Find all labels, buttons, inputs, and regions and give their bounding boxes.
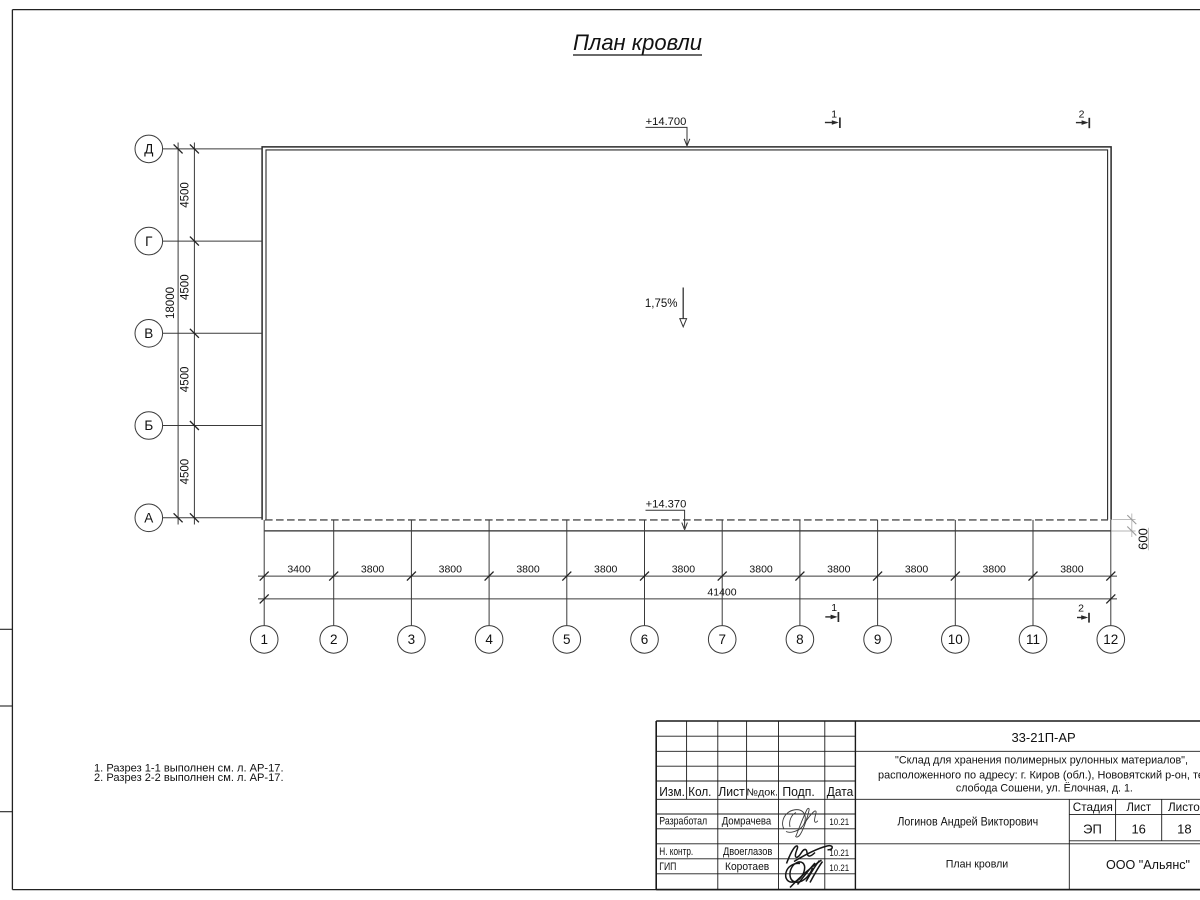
svg-text:8: 8 [796,632,804,647]
svg-text:4500: 4500 [179,459,191,485]
svg-text:3: 3 [408,632,416,647]
svg-text:3800: 3800 [594,564,618,576]
svg-text:2: 2 [330,632,338,647]
svg-text:33-21П-АР: 33-21П-АР [1011,730,1075,745]
svg-text:Коротаев: Коротаев [725,861,769,873]
svg-text:9: 9 [874,632,882,647]
svg-text:3400: 3400 [287,564,311,576]
svg-text:Лист: Лист [718,784,745,799]
svg-text:1: 1 [831,602,837,614]
svg-text:1,75%: 1,75% [645,298,678,310]
svg-text:+14.370: +14.370 [646,498,687,510]
svg-text:Н. контр.: Н. контр. [659,846,693,858]
svg-text:Стадия: Стадия [1073,800,1113,814]
svg-text:16: 16 [1131,822,1145,837]
svg-text:600: 600 [1136,528,1151,550]
svg-text:1: 1 [260,632,268,647]
svg-text:Г: Г [145,234,153,249]
svg-text:План кровли: План кровли [573,30,702,55]
svg-text:5: 5 [563,632,571,647]
svg-text:Дата: Дата [827,784,854,799]
svg-text:10.21: 10.21 [829,862,849,873]
svg-text:3800: 3800 [439,564,463,576]
svg-text:4500: 4500 [179,367,191,393]
svg-text:В: В [144,326,153,341]
svg-text:ГИП: ГИП [659,861,676,873]
svg-text:18000: 18000 [165,287,177,319]
svg-text:Разработал: Разработал [659,816,707,828]
svg-text:4500: 4500 [179,182,191,208]
svg-text:10.21: 10.21 [829,816,849,827]
svg-text:3800: 3800 [749,564,773,576]
svg-text:расположенного по адресу: г. К: расположенного по адресу: г. Киров (обл.… [878,770,1200,782]
svg-text:3800: 3800 [516,564,540,576]
svg-text:2: 2 [1079,109,1085,121]
svg-text:41400: 41400 [707,586,736,598]
svg-text:Лист: Лист [1127,800,1152,814]
svg-text:12: 12 [1103,632,1118,647]
svg-text:11: 11 [1026,632,1040,647]
svg-text:6: 6 [641,632,649,647]
svg-text:4: 4 [485,632,493,647]
svg-text:ЭП: ЭП [1083,822,1102,837]
svg-text:Б: Б [144,418,153,433]
svg-text:3800: 3800 [983,564,1007,576]
svg-text:3800: 3800 [827,564,851,576]
svg-text:Листов: Листов [1168,800,1200,814]
svg-text:ООО "Альянс": ООО "Альянс" [1106,857,1190,872]
svg-text:Д: Д [144,142,153,157]
svg-text:3800: 3800 [672,564,696,576]
svg-text:Домрачева: Домрачева [722,816,772,828]
svg-text:18: 18 [1177,822,1191,837]
svg-text:3800: 3800 [361,564,385,576]
svg-text:1: 1 [831,109,837,121]
svg-text:№док.: №док. [746,787,778,798]
svg-text:3800: 3800 [905,564,929,576]
svg-text:"Склад для хранения полимерных: "Склад для хранения полимерных рулонных … [895,755,1188,767]
svg-text:Подп.: Подп. [782,784,814,799]
svg-text:План кровли: План кровли [946,859,1008,871]
svg-text:4500: 4500 [179,274,191,300]
svg-text:2. Разрез 2-2 выполнен см. л.: 2. Разрез 2-2 выполнен см. л. АР-17. [94,772,284,784]
svg-text:Логинов Андрей Викторович: Логинов Андрей Викторович [897,816,1038,829]
svg-text:Кол.: Кол. [688,784,711,799]
svg-text:2: 2 [1078,603,1084,615]
svg-text:Двоеглазов: Двоеглазов [723,846,772,858]
svg-text:3800: 3800 [1060,564,1084,576]
svg-text:слобода Сошени, ул. Ёлочная, д: слобода Сошени, ул. Ёлочная, д. 1. [956,782,1133,794]
svg-text:10: 10 [948,632,963,647]
svg-text:7: 7 [718,632,726,647]
svg-text:+14.700: +14.700 [646,116,687,128]
svg-text:А: А [144,511,153,526]
svg-text:Изм.: Изм. [659,784,685,799]
